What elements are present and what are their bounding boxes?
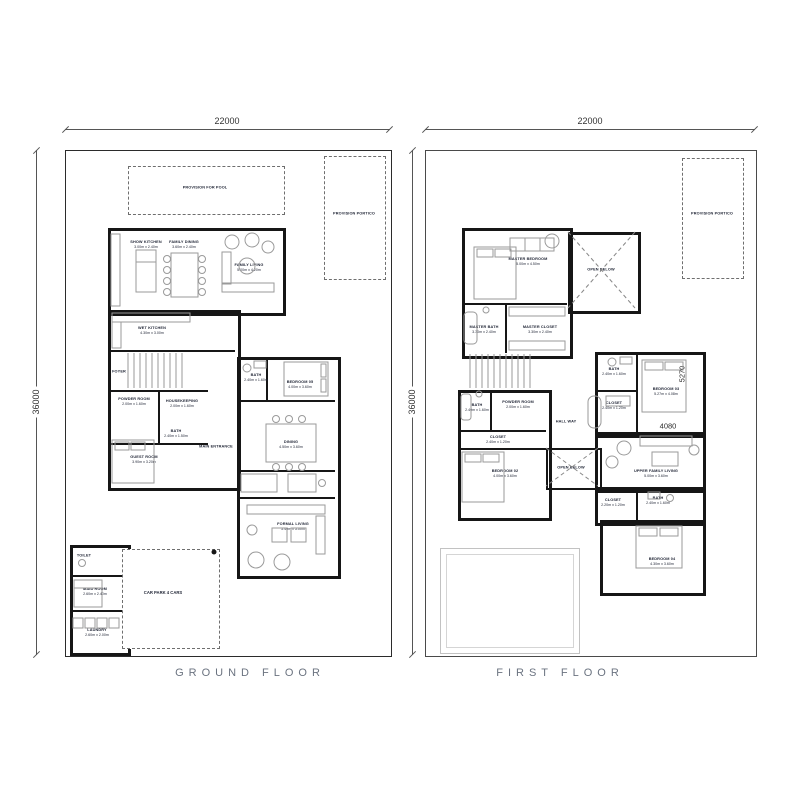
bedroom03-width-dim: 4080	[660, 422, 677, 431]
room-first-upper-family-living: UPPER FAMILY LIVING 5.00m x 3.60m	[634, 469, 678, 478]
wall-partition	[636, 487, 638, 520]
ground-floor-title: GROUND FLOOR	[175, 667, 325, 679]
first-depth-dimension: 36000	[407, 386, 417, 417]
wall-partition	[595, 390, 638, 392]
room-ground-formal-living: FORMAL LIVING 5.40m x 5.00m	[277, 522, 309, 531]
ground-provision-portico-label: PROVISION PORTICO	[333, 212, 375, 217]
room-first-open-below-1: OPEN BELOW	[587, 268, 614, 273]
first-terrace-outline-inner	[446, 554, 574, 648]
bedroom03-depth-dim: 5270	[678, 366, 687, 383]
room-ground-bedroom-05: BEDROOM 05 4.00m x 3.60m	[287, 380, 314, 389]
room-first-bath-bed3: BATH 2.40m x 1.60m	[602, 367, 626, 376]
room-ground-dining: DINING 4.50m x 3.60m	[279, 440, 303, 449]
wall-partition	[462, 303, 567, 305]
room-first-master-bath: MASTER BATH 3.30m x 2.40m	[470, 325, 499, 334]
dim-tick	[409, 651, 416, 658]
first-provision-portico-area	[682, 158, 744, 279]
wall-partition	[108, 350, 235, 352]
room-ground-housekeeping: HOUSEKEEPING 2.00m x 1.60m	[166, 399, 198, 408]
wall-partition	[505, 303, 507, 353]
room-ground-main-entrance: MAIN ENTRANCE	[199, 445, 233, 450]
ground-top-dimension-line	[65, 129, 390, 130]
room-ground-wet-kitchen: WET KITCHEN 4.30m x 3.00m	[138, 326, 166, 335]
provision-pool-label: PROVISION FOR POOL	[183, 186, 228, 191]
room-first-master-closet: MASTER CLOSET 3.30m x 2.40m	[523, 325, 557, 334]
car-park-area	[122, 549, 220, 649]
first-block-family-living	[595, 432, 706, 493]
ground-block-right-wing	[237, 357, 341, 579]
room-ground-family-living: FAMILY LIVING 5.00m x 4.20m	[234, 263, 263, 272]
wall-partition	[458, 448, 546, 450]
room-first-bath-bed4: BATH 2.40m x 1.60m	[646, 496, 670, 505]
first-block-bedroom-03	[595, 352, 706, 438]
room-first-closet-bed3: CLOSET 2.40m x 1.20m	[602, 401, 626, 410]
wall-partition	[108, 443, 208, 445]
wall-partition	[70, 610, 125, 612]
room-first-closet-mid: CLOSET 2.40m x 1.20m	[486, 435, 510, 444]
first-width-dimension: 22000	[574, 116, 605, 126]
dim-tick	[751, 126, 758, 133]
room-first-bedroom-04: BEDROOM 04 4.30m x 3.60m	[649, 557, 676, 566]
wall-partition	[636, 352, 638, 432]
room-first-bath-mid: BATH 2.40m x 1.60m	[465, 403, 489, 412]
room-first-open-below-2: OPEN BELOW	[557, 466, 584, 471]
room-ground-guest-room: GUEST ROOM 3.90m x 3.20m	[130, 455, 157, 464]
first-provision-portico-label: PROVISION PORTICO	[691, 212, 733, 217]
wall-partition	[458, 430, 546, 432]
first-void-open-below-1	[568, 232, 641, 314]
car-park-label: CAR PARK 4 CARS	[144, 591, 182, 595]
room-first-closet-bed4: CLOSET 2.20m x 1.20m	[601, 498, 625, 507]
room-ground-toilet: TOILET	[77, 554, 91, 559]
wall-partition	[158, 390, 160, 445]
wall-partition	[237, 470, 335, 472]
room-ground-powder: POWDER ROOM 2.00m x 1.60m	[118, 397, 150, 406]
wall-partition	[490, 390, 492, 432]
wall-partition	[70, 575, 125, 577]
room-first-powder: POWDER ROOM 2.00m x 1.60m	[502, 400, 534, 409]
room-first-master-bedroom: MASTER BEDROOM 5.00m x 4.50m	[509, 257, 548, 266]
ground-depth-dimension: 36000	[31, 386, 41, 417]
ground-width-dimension: 22000	[211, 116, 242, 126]
first-top-dimension-line	[425, 129, 755, 130]
room-ground-bath-left: BATH 2.40m x 1.50m	[164, 429, 188, 438]
room-ground-show-kitchen: SHOW KITCHEN 3.00m x 2.40m	[130, 240, 161, 249]
room-first-bedroom-03: BEDROOM 03 5.27m x 4.08m	[653, 387, 680, 396]
room-ground-maid-room: MAID ROOM 2.60m x 2.40m	[83, 587, 107, 596]
room-first-hall-way: HALL WAY	[556, 420, 577, 425]
wall-partition	[237, 400, 335, 402]
first-floor-title: FIRST FLOOR	[496, 667, 624, 679]
room-ground-foyer: FOYER	[112, 370, 126, 375]
provision-pool-area	[128, 166, 285, 215]
room-ground-laundry: LAUNDRY 2.60m x 2.00m	[85, 628, 109, 637]
dim-tick	[33, 651, 40, 658]
first-block-master	[462, 228, 573, 359]
dim-tick	[386, 126, 393, 133]
drawing-sheet: 22000 36000 PROVISION FOR POOL PROVISION…	[0, 0, 800, 800]
ground-provision-portico-area	[324, 156, 386, 280]
room-ground-family-dining: FAMILY DINING 3.60m x 2.40m	[169, 240, 199, 249]
room-first-bedroom-02: BEDROOM 02 4.00m x 3.60m	[492, 469, 519, 478]
wall-partition	[237, 497, 335, 499]
room-ground-bath-right: BATH 2.40m x 1.60m	[244, 373, 268, 382]
